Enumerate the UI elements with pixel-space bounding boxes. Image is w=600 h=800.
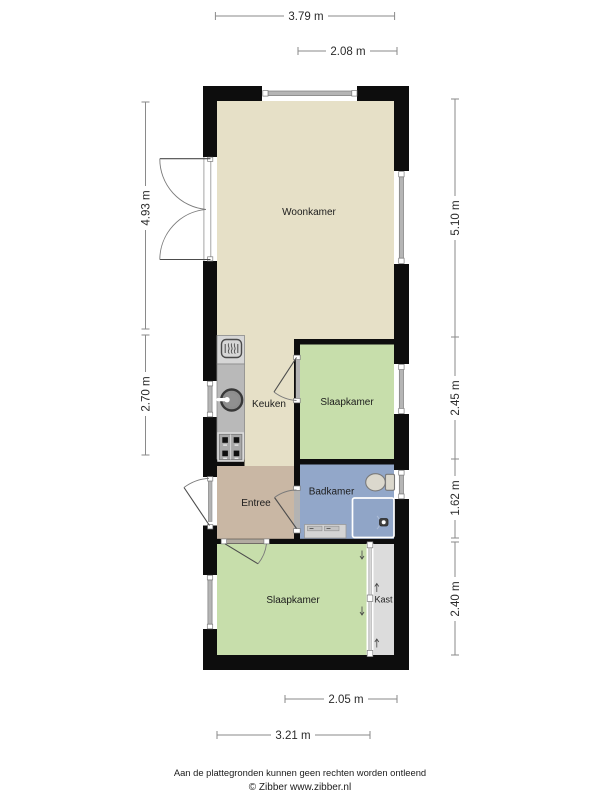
svg-text:4.93 m: 4.93 m	[141, 190, 153, 225]
svg-text:Keuken: Keuken	[252, 399, 286, 410]
svg-text:2.45 m: 2.45 m	[450, 380, 462, 415]
svg-text:Entree: Entree	[241, 498, 271, 509]
svg-text:Woonkamer: Woonkamer	[282, 207, 336, 218]
svg-text:Slaapkamer: Slaapkamer	[266, 595, 320, 606]
svg-text:5.10 m: 5.10 m	[450, 200, 462, 235]
svg-text:2.70 m: 2.70 m	[141, 376, 153, 411]
svg-text:Slaapkamer: Slaapkamer	[320, 397, 374, 408]
svg-text:2.08 m: 2.08 m	[330, 46, 365, 58]
svg-text:© Zibber www.zibber.nl: © Zibber www.zibber.nl	[249, 782, 351, 793]
svg-text:3.79 m: 3.79 m	[288, 11, 323, 23]
svg-text:1.62 m: 1.62 m	[450, 480, 462, 515]
svg-text:Badkamer: Badkamer	[309, 487, 355, 498]
svg-text:3.21 m: 3.21 m	[275, 730, 310, 742]
svg-text:Aan de plattegronden kunnen ge: Aan de plattegronden kunnen geen rechten…	[174, 767, 426, 778]
svg-text:2.40 m: 2.40 m	[450, 581, 462, 616]
svg-text:2.05 m: 2.05 m	[328, 694, 363, 706]
svg-text:Kast: Kast	[374, 595, 393, 605]
